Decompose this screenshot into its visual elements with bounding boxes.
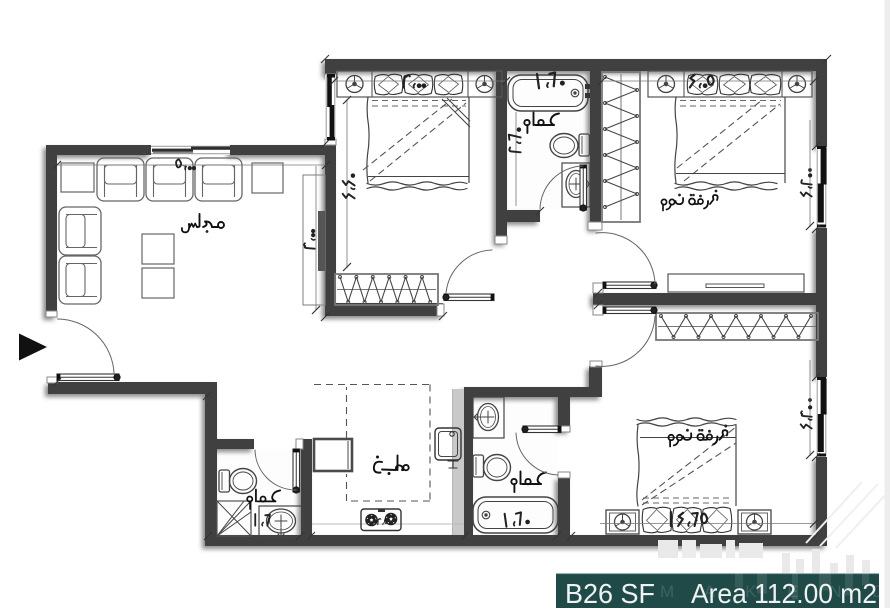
svg-text:B26 SF: B26 SF [565,578,655,608]
svg-text:Area 112.00 m2: Area 112.00 m2 [691,578,877,608]
